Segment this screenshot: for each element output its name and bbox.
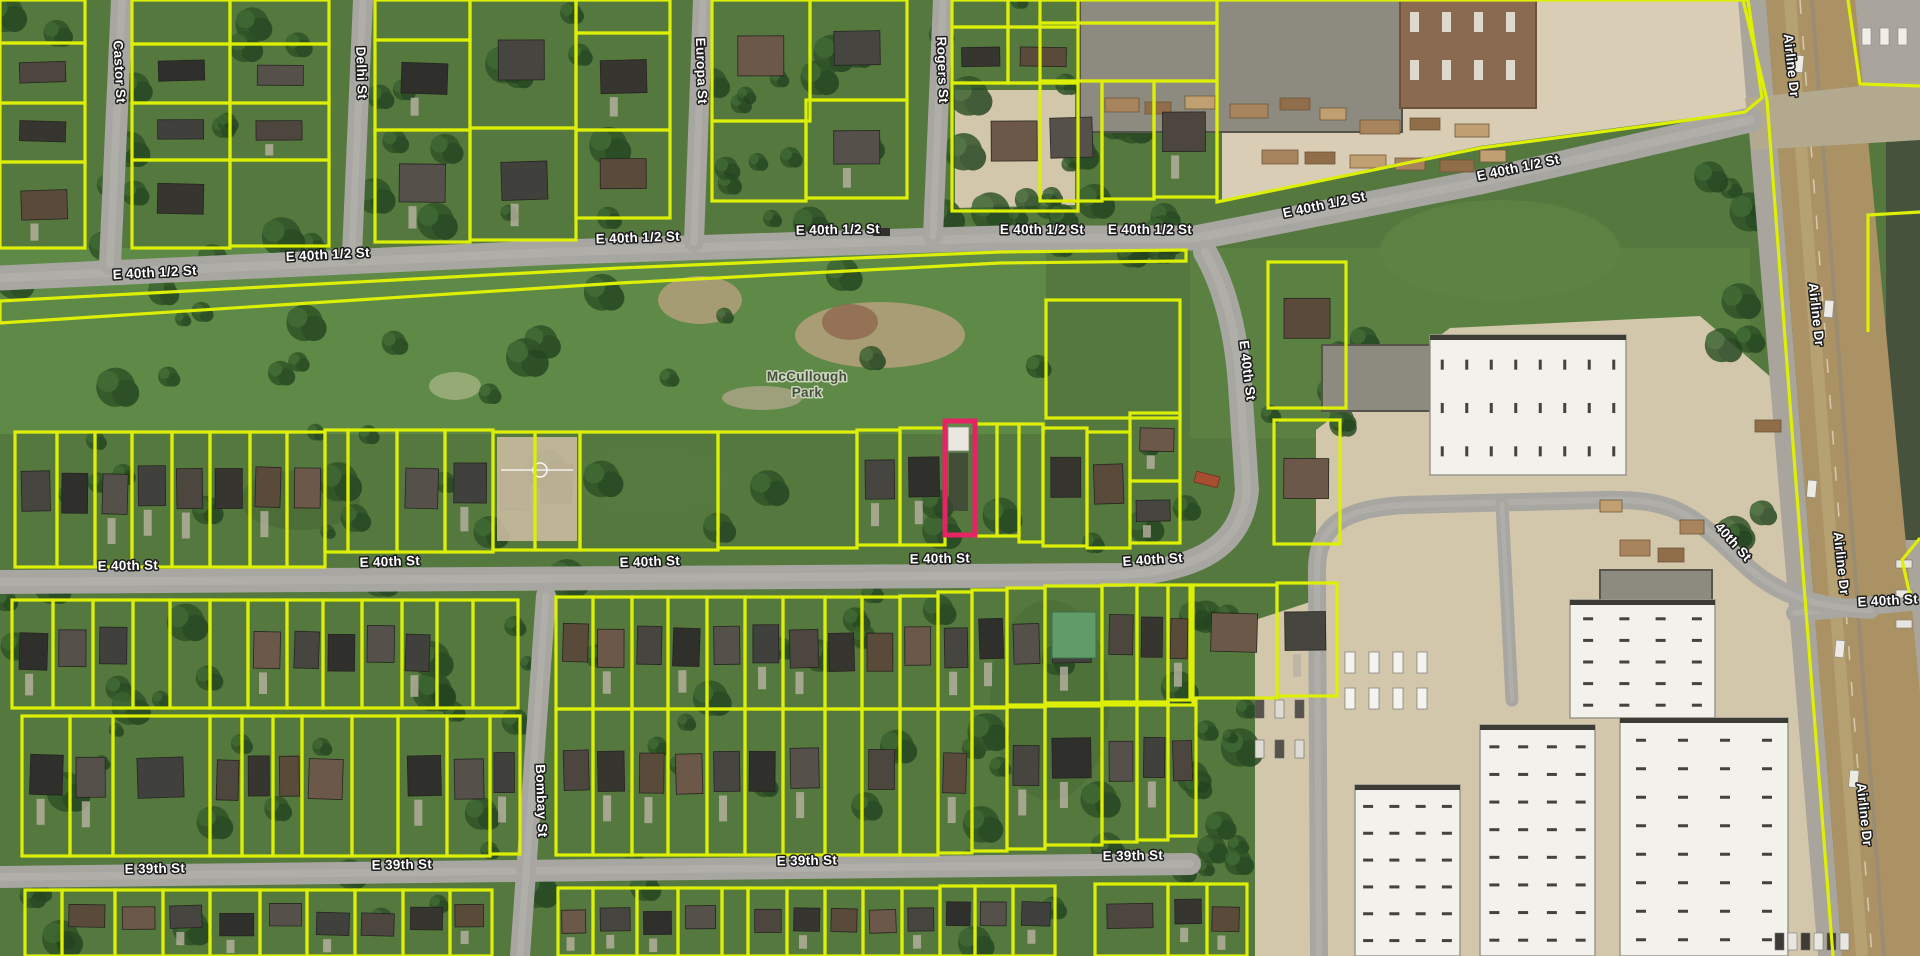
house-roof <box>294 631 320 669</box>
car <box>1255 700 1264 718</box>
roof-vent <box>1363 912 1373 915</box>
street-label-e40: E 40th St <box>619 553 680 570</box>
roof-vent <box>1678 796 1688 799</box>
driveway <box>410 675 418 697</box>
driveway <box>461 931 469 944</box>
shed-roof <box>948 427 969 451</box>
roof-vent <box>1692 617 1702 620</box>
house-roof <box>454 759 484 799</box>
car <box>1775 933 1784 950</box>
house-roof <box>62 473 88 513</box>
roof-vent <box>1489 856 1499 859</box>
street-label-e39: E 39th St <box>125 860 186 876</box>
driveway <box>795 672 803 694</box>
roof-vent <box>1576 801 1586 804</box>
house-roof <box>316 912 349 935</box>
roof-vent <box>1489 773 1499 776</box>
house-roof <box>158 120 204 139</box>
driveway <box>182 513 190 539</box>
house-roof <box>675 754 703 795</box>
driveway <box>176 932 184 945</box>
roof-vent <box>1588 360 1591 370</box>
basketball-court <box>497 437 577 541</box>
driveway <box>108 518 116 544</box>
roof-vent <box>1619 639 1629 642</box>
car <box>1788 933 1797 950</box>
house-roof <box>1175 899 1202 924</box>
house-roof <box>944 628 968 668</box>
roof-vent <box>1636 767 1646 770</box>
house-roof <box>1020 47 1066 67</box>
roof-vent <box>1720 739 1730 742</box>
map-canvas[interactable]: McCulloughParkE 40th 1/2 StE 40th 1/2 St… <box>0 0 1920 956</box>
ground-patch <box>722 386 802 410</box>
ground-patch <box>822 304 878 340</box>
house-roof <box>308 759 343 800</box>
roof-vent <box>1490 446 1493 456</box>
warehouse-white <box>1620 718 1788 956</box>
warehouse-dark <box>1322 345 1430 411</box>
roof-vent <box>1612 403 1615 413</box>
roof-vent <box>1678 824 1688 827</box>
roof-vent <box>1619 661 1629 664</box>
house-roof <box>563 750 589 791</box>
lumber-stack <box>1755 420 1781 432</box>
street-label-e40half: E 40th 1/2 St <box>796 221 881 237</box>
street-label-e39: E 39th St <box>777 852 838 868</box>
map-viewport[interactable]: McCulloughParkE 40th 1/2 StE 40th 1/2 St… <box>0 0 1920 956</box>
driveway <box>37 799 45 825</box>
house-roof <box>643 911 671 934</box>
house-roof <box>122 907 155 930</box>
roof-vent <box>1506 60 1515 80</box>
ground-patch <box>1380 200 1620 300</box>
lumber-stack <box>1185 96 1215 109</box>
lumber-stack <box>1620 540 1650 556</box>
warehouse-eave <box>1620 718 1788 723</box>
roof-vent <box>1583 617 1593 620</box>
driveway <box>1171 155 1179 178</box>
driveway <box>649 938 657 952</box>
house-roof <box>1140 428 1175 452</box>
house-roof <box>943 753 967 794</box>
house-roof <box>1141 617 1163 657</box>
house-roof <box>501 161 548 201</box>
roof-vent <box>1588 403 1591 413</box>
house-roof <box>755 909 782 932</box>
street-label-delhi: Delhi St <box>353 46 370 99</box>
driveway <box>1060 782 1068 808</box>
driveway <box>949 672 957 695</box>
driveway <box>843 168 851 188</box>
house-roof <box>991 121 1037 161</box>
street-label-e40: E 40th St <box>359 553 420 570</box>
roof-vent <box>1583 704 1593 707</box>
street-label-e40half: E 40th 1/2 St <box>1000 222 1084 237</box>
house-roof <box>1170 619 1188 659</box>
house-roof <box>686 906 716 929</box>
house-roof <box>865 460 895 499</box>
driveway <box>1018 789 1026 815</box>
roof-vent <box>1489 911 1499 914</box>
driveway <box>265 144 273 155</box>
roof-vent <box>1636 910 1646 913</box>
roof-vent <box>1547 856 1557 859</box>
warehouse-eave <box>1480 725 1595 730</box>
roof-vent <box>1416 805 1426 808</box>
roof-vent <box>1514 360 1517 370</box>
green-roof-house <box>1052 612 1096 658</box>
house-roof <box>255 467 281 508</box>
roof-vent <box>1656 617 1666 620</box>
car <box>1255 740 1264 758</box>
driveway <box>567 937 575 951</box>
house-roof <box>834 31 881 66</box>
house-roof <box>19 61 66 83</box>
truck <box>1369 688 1379 709</box>
roof-vent <box>1678 739 1688 742</box>
house-roof <box>1013 745 1039 785</box>
roof-vent <box>1720 881 1730 884</box>
house-roof <box>672 628 700 667</box>
roof-vent <box>1762 938 1772 941</box>
roof-vent <box>1762 881 1772 884</box>
driveway <box>603 671 611 693</box>
house-roof <box>905 627 931 666</box>
roof-vent <box>1636 938 1646 941</box>
car <box>1835 640 1845 658</box>
house-roof <box>867 633 893 671</box>
house-roof <box>216 760 239 801</box>
house-roof <box>946 902 970 926</box>
driveway <box>511 204 519 226</box>
truck <box>1345 688 1355 709</box>
roof-vent <box>1465 360 1468 370</box>
driveway <box>1148 781 1156 807</box>
roof-vent <box>1678 938 1688 941</box>
house-roof <box>69 904 105 927</box>
house-roof <box>828 633 854 672</box>
lumber-stack <box>1305 152 1335 164</box>
house-roof <box>21 471 50 512</box>
roof-vent <box>1416 832 1426 835</box>
house-roof <box>1143 737 1165 777</box>
driveway <box>1174 663 1182 687</box>
truck <box>1417 652 1427 673</box>
house-roof <box>269 903 301 926</box>
warehouse-white <box>1430 335 1626 475</box>
roof-vent <box>1442 912 1452 915</box>
house-roof <box>405 634 430 672</box>
roof-vent <box>1583 639 1593 642</box>
house-roof <box>600 159 646 189</box>
driveway <box>1143 525 1151 537</box>
car <box>1824 300 1834 318</box>
roof-vent <box>1518 939 1528 942</box>
driveway <box>260 511 268 537</box>
truck <box>1393 652 1403 673</box>
roof-vent <box>1363 885 1373 888</box>
house-roof <box>102 474 128 515</box>
lumber-stack <box>1360 120 1400 134</box>
warehouse-eave <box>1355 785 1460 790</box>
roof-vent <box>1518 856 1528 859</box>
house-roof <box>1285 612 1326 651</box>
roof-vent <box>1539 360 1542 370</box>
house-roof <box>494 753 515 793</box>
house-roof <box>869 749 895 789</box>
roof-vent <box>1518 801 1528 804</box>
roof-vent <box>1576 856 1586 859</box>
roof-vent <box>1389 832 1399 835</box>
roof-vent <box>1547 801 1557 804</box>
warehouse-dark <box>1600 570 1712 604</box>
roof-vent <box>1442 12 1451 32</box>
roof-vent <box>1656 682 1666 685</box>
house-roof <box>1052 738 1091 779</box>
roof-vent <box>1619 617 1629 620</box>
driveway <box>25 674 33 696</box>
park-label: Park <box>792 385 823 400</box>
parcel-shadow <box>949 453 968 511</box>
roof-vent <box>1489 745 1499 748</box>
house-roof <box>176 468 202 508</box>
roof-vent <box>1442 805 1452 808</box>
roof-vent <box>1489 801 1499 804</box>
roof-vent <box>1583 682 1593 685</box>
driveway <box>871 503 879 526</box>
roof-vent <box>1441 403 1444 413</box>
driveway <box>799 935 807 949</box>
roof-vent <box>1441 446 1444 456</box>
roof-vent <box>1389 885 1399 888</box>
house-roof <box>597 629 624 667</box>
roof-vent <box>1363 939 1373 942</box>
driveway <box>82 801 90 827</box>
house-roof <box>562 910 586 934</box>
roof-vent <box>1636 824 1646 827</box>
street-label-e40: E 40th St <box>98 557 159 573</box>
street-label-e40half: E 40th 1/2 St <box>1108 222 1192 237</box>
house-roof <box>834 131 880 165</box>
warehouse-rust <box>1400 0 1536 108</box>
street-label-bombay: Bombay St <box>533 764 551 838</box>
street-label-e39: E 39th St <box>372 856 433 872</box>
roof-vent <box>1547 883 1557 886</box>
roof-vent <box>1720 767 1730 770</box>
house-roof <box>138 466 166 506</box>
park-label: McCullough <box>767 369 847 384</box>
house-roof <box>908 908 934 931</box>
car <box>1275 740 1284 758</box>
lumber-stack <box>1680 520 1704 534</box>
roof-vent <box>1389 912 1399 915</box>
roof-vent <box>1474 60 1483 80</box>
roof-vent <box>1619 682 1629 685</box>
car <box>1295 740 1304 758</box>
roof-vent <box>1576 911 1586 914</box>
roof-vent <box>1678 767 1688 770</box>
roof-vent <box>1363 859 1373 862</box>
warehouse-white <box>1480 725 1595 956</box>
roof-vent <box>1762 853 1772 856</box>
car <box>1896 620 1912 628</box>
driveway <box>948 797 956 823</box>
street-label-e39: E 39th St <box>1103 847 1164 863</box>
house-roof <box>21 189 68 220</box>
driveway <box>1060 667 1068 691</box>
house-roof <box>908 457 939 497</box>
roof-vent <box>1465 446 1468 456</box>
roof-vent <box>1518 883 1528 886</box>
roof-vent <box>1576 773 1586 776</box>
truck <box>1345 652 1355 673</box>
driveway <box>606 935 614 949</box>
roof-vent <box>1576 939 1586 942</box>
roof-vent <box>1583 661 1593 664</box>
roof-vent <box>1547 911 1557 914</box>
driveway <box>30 223 38 240</box>
house-roof <box>831 908 857 932</box>
house-roof <box>962 47 1000 67</box>
roof-vent <box>1506 12 1515 32</box>
car <box>1898 28 1907 45</box>
car <box>1295 700 1304 718</box>
lumber-stack <box>1480 150 1506 162</box>
house-roof <box>1093 464 1124 504</box>
driveway <box>984 663 992 687</box>
roof-vent <box>1389 859 1399 862</box>
roof-vent <box>1636 739 1646 742</box>
house-roof <box>1284 298 1330 338</box>
driveway <box>913 935 921 949</box>
lumber-stack <box>1658 548 1684 562</box>
roof-vent <box>1514 403 1517 413</box>
house-roof <box>454 463 487 503</box>
roof-vent <box>1518 828 1528 831</box>
house-roof <box>29 754 63 795</box>
roof-vent <box>1692 639 1702 642</box>
house-roof <box>367 625 395 662</box>
roof-vent <box>1720 824 1730 827</box>
driveway <box>1027 930 1035 944</box>
house-roof <box>407 755 441 796</box>
house-roof <box>1212 907 1240 932</box>
roof-vent <box>1588 446 1591 456</box>
driveway <box>460 507 468 531</box>
lumber-stack <box>1350 155 1386 168</box>
roof-vent <box>1563 446 1566 456</box>
house-roof <box>253 631 280 668</box>
roof-vent <box>1363 832 1373 835</box>
roof-vent <box>1490 360 1493 370</box>
driveway <box>1293 654 1301 677</box>
house-roof <box>328 634 355 671</box>
roof-vent <box>1389 805 1399 808</box>
driveway <box>498 797 506 823</box>
lumber-stack <box>1600 500 1622 512</box>
house-roof <box>597 751 624 791</box>
house-roof <box>399 164 445 203</box>
lumber-stack <box>1230 104 1268 118</box>
street-label-e40: E 40th St <box>910 550 971 566</box>
roof-vent <box>1762 767 1772 770</box>
driveway <box>610 97 618 116</box>
roof-vent <box>1489 883 1499 886</box>
house-roof <box>1051 457 1081 497</box>
house-roof <box>714 751 740 791</box>
house-roof <box>790 748 819 789</box>
driveway <box>1217 935 1225 949</box>
house-roof <box>1109 741 1133 781</box>
roof-vent <box>1547 828 1557 831</box>
car <box>1275 700 1284 718</box>
driveway <box>144 510 152 536</box>
house-roof <box>979 618 1004 659</box>
house-roof <box>789 629 819 668</box>
driveway <box>1147 455 1155 469</box>
house-roof <box>637 626 662 665</box>
roof-vent <box>1442 885 1452 888</box>
house-roof <box>600 908 630 932</box>
street-label-e40half: E 40th 1/2 St <box>596 229 681 247</box>
roof-vent <box>1389 939 1399 942</box>
house-roof <box>99 627 127 664</box>
roof-vent <box>1410 12 1419 32</box>
house-roof <box>753 625 779 663</box>
roof-vent <box>1416 885 1426 888</box>
house-roof <box>749 751 775 791</box>
roof-vent <box>1762 910 1772 913</box>
house-roof <box>1107 903 1153 928</box>
house-roof <box>1211 613 1258 653</box>
house-roof <box>738 36 784 76</box>
house-roof <box>455 904 484 927</box>
roof-vent <box>1636 796 1646 799</box>
roof-vent <box>1678 853 1688 856</box>
house-roof <box>256 121 302 141</box>
roof-vent <box>1692 682 1702 685</box>
house-roof <box>1013 623 1040 664</box>
roof-vent <box>1442 60 1451 80</box>
house-roof <box>1136 500 1170 522</box>
car <box>1862 28 1871 45</box>
roof-vent <box>1442 939 1452 942</box>
truck <box>1369 652 1379 673</box>
lumber-stack <box>1105 98 1139 112</box>
lumber-stack <box>1410 118 1440 130</box>
house-roof <box>19 633 48 670</box>
roof-vent <box>1416 859 1426 862</box>
house-roof <box>639 753 664 793</box>
roof-vent <box>1539 403 1542 413</box>
roof-vent <box>1636 853 1646 856</box>
roof-vent <box>1442 859 1452 862</box>
roof-vent <box>1539 446 1542 456</box>
roof-vent <box>1678 881 1688 884</box>
house-roof <box>562 623 588 662</box>
roof-vent <box>1678 910 1688 913</box>
driveway <box>758 667 766 689</box>
truck <box>1393 688 1403 709</box>
roof-vent <box>1576 883 1586 886</box>
house-roof <box>19 121 66 142</box>
driveway <box>227 940 235 953</box>
house-roof <box>76 757 105 797</box>
lumber-stack <box>1262 150 1298 164</box>
roof-vent <box>1720 853 1730 856</box>
house-roof <box>361 913 394 936</box>
